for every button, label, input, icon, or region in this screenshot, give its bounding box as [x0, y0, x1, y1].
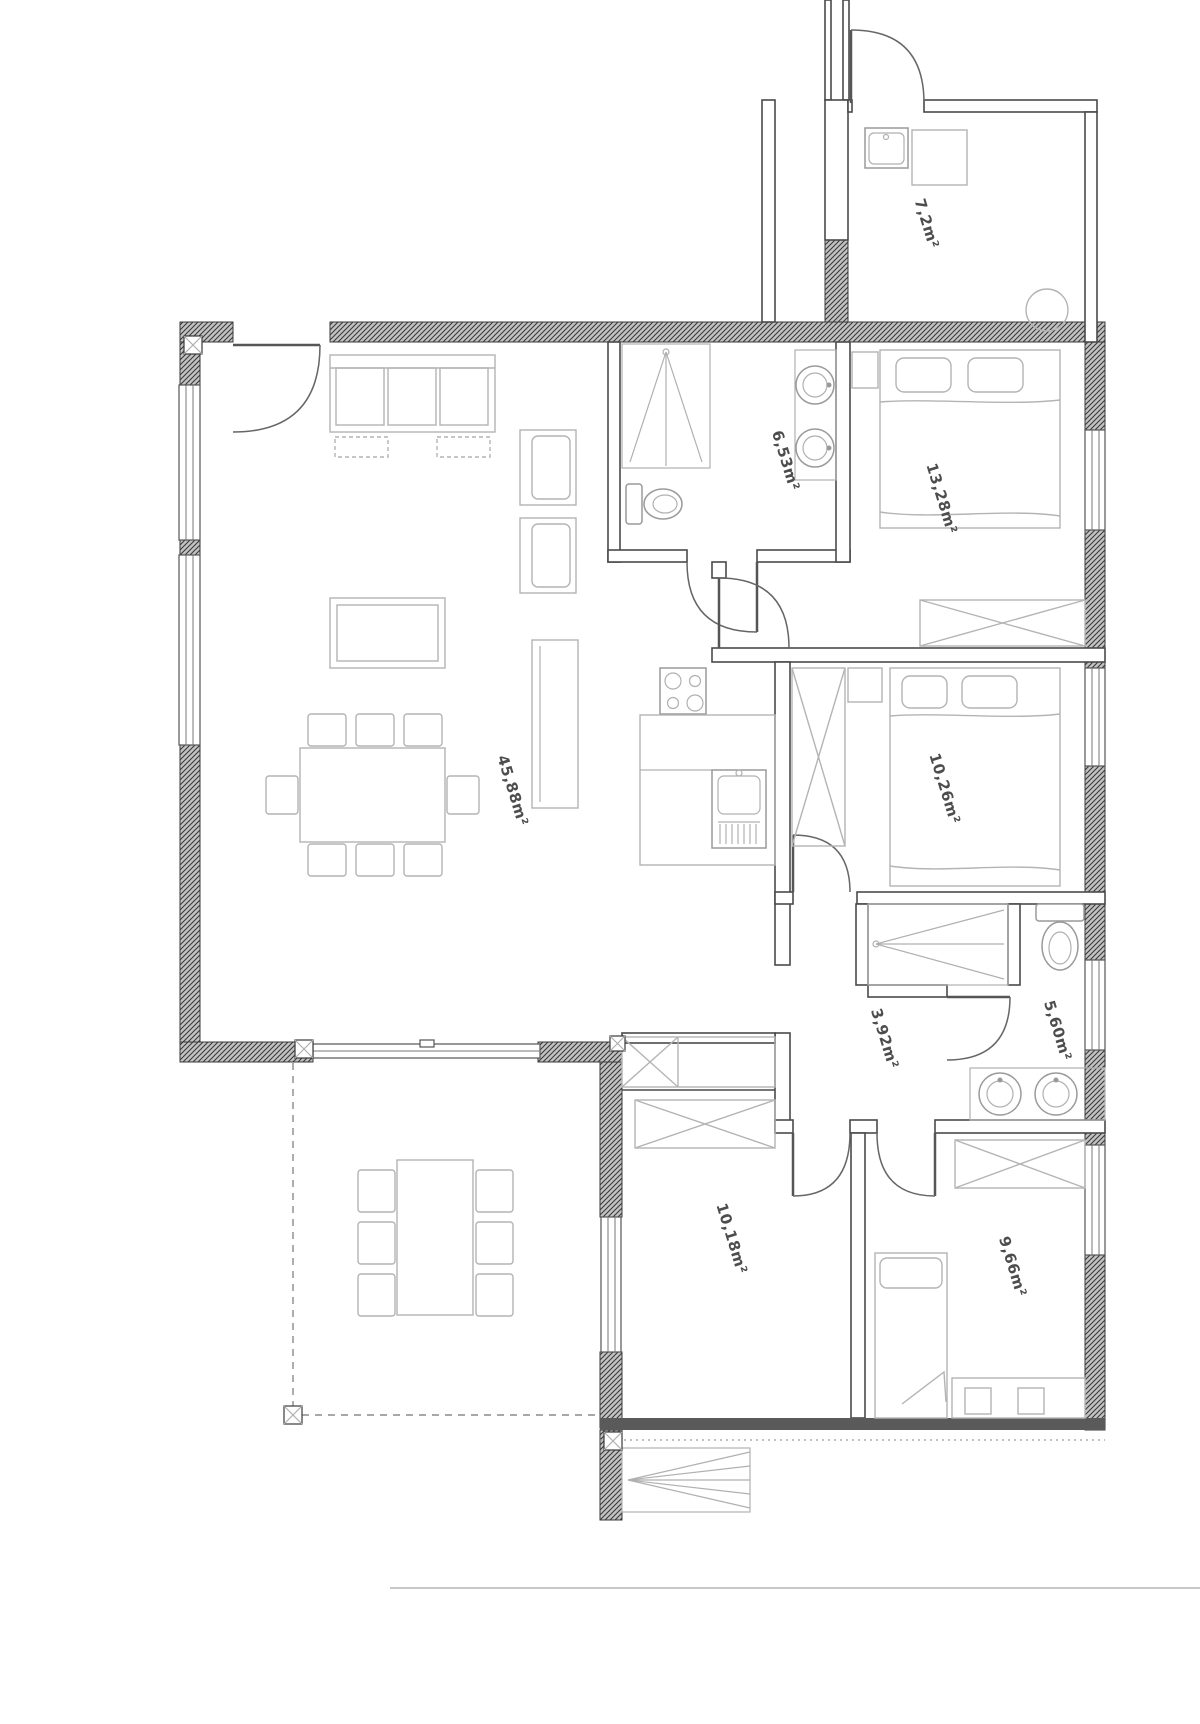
doors — [233, 30, 1010, 1196]
dining-set — [266, 714, 479, 876]
toilet-1 — [626, 484, 682, 524]
entrance-steps — [622, 1448, 750, 1512]
nightstand-1 — [852, 352, 878, 388]
desk-bedroom-4 — [952, 1378, 1085, 1418]
label-hallway: 3,92m² — [867, 1006, 902, 1071]
bedroom-1-door — [719, 578, 789, 648]
window-right-2 — [1085, 668, 1105, 766]
floor-plan-drawing: 7,2m² 6,53m² 13,28m² 45,88m² 10,26m² 3,9… — [0, 0, 1200, 1724]
terrace-outline — [293, 1063, 600, 1415]
bedroom-3-door — [793, 1133, 850, 1196]
vanity-1 — [795, 350, 836, 480]
coffee-table — [330, 598, 445, 668]
porch-door — [851, 30, 924, 103]
floor-plan-page: 7,2m² 6,53m² 13,28m² 45,88m² 10,26m² 3,9… — [0, 0, 1200, 1724]
window-right-1 — [1085, 430, 1105, 530]
label-bedroom-3: 10,18m² — [712, 1201, 751, 1276]
wardrobe-3 — [635, 1100, 775, 1148]
label-bedroom-1: 13,28m² — [922, 461, 961, 536]
armchair-1 — [520, 430, 576, 505]
bedroom-2-door — [793, 835, 850, 892]
armchair-2 — [520, 518, 576, 593]
nightstand-2 — [848, 668, 882, 702]
entry-door-living — [233, 345, 320, 432]
sofa — [330, 355, 495, 457]
window-right-4 — [1085, 1145, 1105, 1255]
window-wing-left — [601, 1217, 621, 1352]
corner-markers — [184, 336, 625, 1450]
label-bathroom-2: 5,60m² — [1040, 998, 1075, 1063]
storage-table — [912, 130, 967, 185]
wardrobe-4 — [955, 1140, 1085, 1188]
bed-4 — [875, 1253, 947, 1418]
wardrobe-1 — [920, 600, 1085, 646]
label-bedroom-2: 10,26m² — [925, 751, 964, 826]
exterior-walls — [180, 240, 1105, 1520]
stove — [660, 668, 706, 714]
label-living-room: 45,88m² — [493, 753, 532, 828]
kitchen-sink — [712, 770, 766, 848]
window-left-2 — [179, 555, 200, 745]
bed-1 — [852, 350, 1060, 528]
terrace-dining-set — [358, 1160, 513, 1316]
washing-machine — [865, 128, 908, 168]
window-left-1 — [179, 385, 200, 540]
label-bedroom-4: 9,66m² — [995, 1234, 1030, 1299]
label-storage-room: 7,2m² — [911, 196, 943, 250]
bedroom-4-door — [877, 1133, 935, 1196]
bed-2 — [848, 668, 1060, 886]
closet-row — [622, 1037, 775, 1087]
sliding-door-terrace — [313, 1040, 540, 1058]
toilet-2 — [1036, 904, 1084, 970]
window-right-3 — [1085, 960, 1105, 1050]
kitchen-island — [532, 640, 578, 808]
shower-1 — [622, 344, 710, 468]
shower-2 — [868, 904, 1008, 985]
bathroom-2-door — [947, 997, 1010, 1060]
wardrobe-2 — [792, 668, 845, 846]
